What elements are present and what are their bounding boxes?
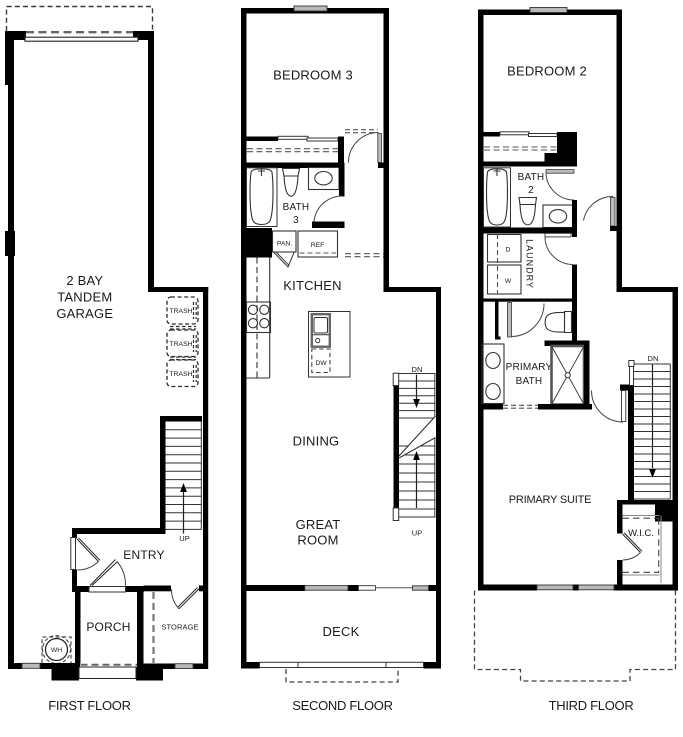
svg-text:TANDEM: TANDEM [57,290,112,305]
svg-text:PORCH: PORCH [86,620,130,634]
svg-text:REF: REF [311,242,325,249]
svg-text:TRASH: TRASH [169,371,192,378]
svg-text:STORAGE: STORAGE [161,623,198,632]
svg-text:BATH: BATH [518,172,545,183]
svg-text:DW: DW [315,360,327,367]
svg-text:W: W [505,278,512,285]
svg-text:2: 2 [528,185,534,196]
svg-text:BATH: BATH [516,376,543,387]
svg-text:FIRST FLOOR: FIRST FLOOR [48,698,130,713]
svg-text:DN: DN [647,354,658,363]
svg-text:BEDROOM 3: BEDROOM 3 [273,68,353,83]
svg-text:UP: UP [179,534,190,543]
svg-text:TRASH: TRASH [169,341,192,348]
svg-text:GARAGE: GARAGE [56,306,113,321]
svg-text:TRASH: TRASH [169,308,192,315]
svg-text:DN: DN [411,365,422,374]
svg-text:PRIMARY SUITE: PRIMARY SUITE [509,494,592,506]
svg-text:GREAT: GREAT [296,517,341,532]
svg-text:SECOND FLOOR: SECOND FLOOR [292,698,392,713]
svg-text:LAUNDRY: LAUNDRY [525,239,535,289]
svg-text:DECK: DECK [323,624,360,639]
svg-text:BATH: BATH [283,202,310,213]
svg-text:2 BAY: 2 BAY [66,273,103,288]
svg-text:KITCHEN: KITCHEN [283,278,341,293]
svg-text:BEDROOM 2: BEDROOM 2 [507,64,587,79]
svg-text:W.I.C.: W.I.C. [628,528,654,539]
svg-text:DINING: DINING [293,434,340,449]
svg-text:ROOM: ROOM [297,533,338,548]
svg-text:PAN.: PAN. [277,241,292,248]
svg-text:3: 3 [293,215,299,226]
svg-text:PRIMARY: PRIMARY [506,362,553,373]
svg-text:ENTRY: ENTRY [123,548,164,562]
svg-text:THIRD FLOOR: THIRD FLOOR [549,698,634,713]
svg-text:UP: UP [412,529,423,538]
svg-text:WH: WH [51,647,62,654]
svg-text:D: D [506,247,511,254]
